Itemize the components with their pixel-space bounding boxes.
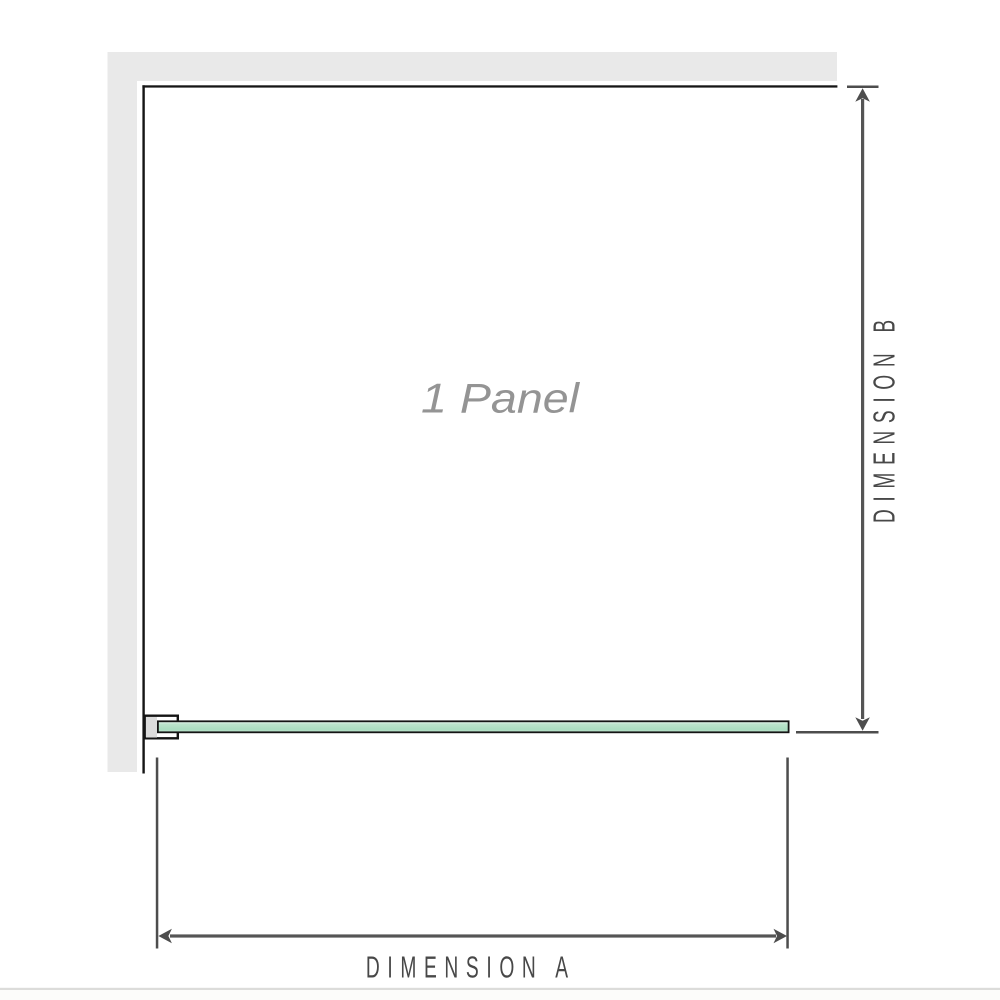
svg-text:1 Panel: 1 Panel xyxy=(421,375,581,422)
svg-text:DIMENSION A: DIMENSION A xyxy=(366,951,576,985)
svg-text:DIMENSION B: DIMENSION B xyxy=(868,312,902,523)
